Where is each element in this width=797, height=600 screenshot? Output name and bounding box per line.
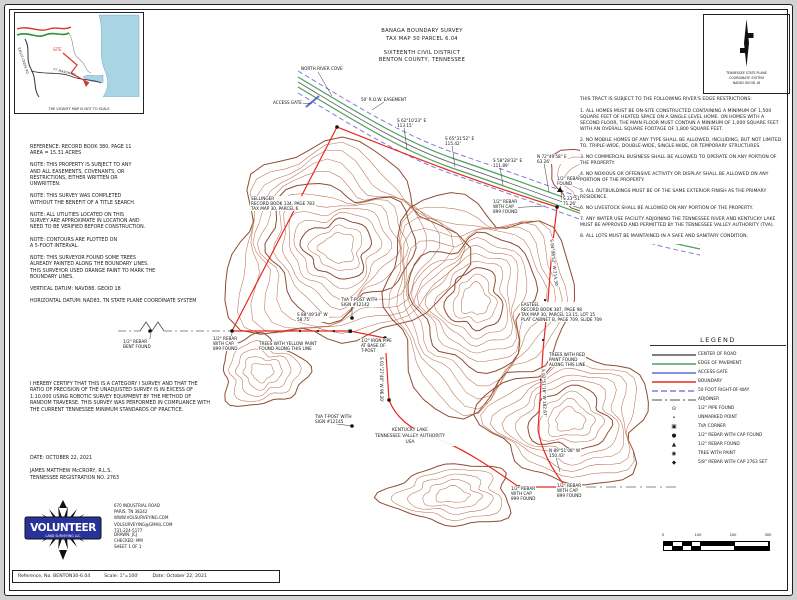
legend-entry: 50 FOOT RIGHT-OF-WAY [650, 386, 786, 395]
legend-line-sample [650, 388, 698, 394]
legend-entry: ◆5/8" REBAR WITH CAP 2763 SET [650, 458, 786, 467]
legend-symbol-icon: ◉ [650, 451, 698, 457]
map-label: TVA T-POST WITHSIGN #12142 [340, 297, 379, 307]
svg-text:VOLUNTEER: VOLUNTEER [30, 522, 96, 534]
scale-bar-row [664, 546, 769, 550]
north-arrow-box: TENNESSEE STATE PLANE COORDINATE SYSTEM … [703, 14, 790, 94]
scale-tick: 0 [662, 533, 664, 537]
legend-line-sample [650, 370, 698, 376]
surveyor-block: JAMES MATTHEW McCRORY, R.L.S. TENNESSEE … [30, 469, 119, 482]
legend-entry: BOUNDARY [650, 377, 786, 386]
legend: LEGEND CENTER OF ROADEDGE OF PAVEMENTACC… [650, 336, 786, 470]
map-label: 1/2" REBARWITH CAP899 FOUND [212, 336, 238, 351]
map-label: S 88°49'34" W58.75' [296, 312, 329, 322]
certification-date: DATE: OCTOBER 22, 2021 [30, 456, 92, 461]
restriction-item: 1. ALL HOMES MUST BE ON-SITE CONSTRUCTED… [580, 109, 785, 133]
survey-note: NOTE: THIS PROPERTY IS SUBJECT TO ANY AN… [30, 163, 202, 188]
survey-note: REFERENCE: RECORD BOOK 380, PAGE 11 AREA… [30, 145, 202, 157]
surveyor-name: JAMES MATTHEW McCRORY, R.L.S. [30, 469, 119, 476]
restrictions-column: THIS TRACT IS SUBJECT TO THE FOLLOWING R… [580, 97, 785, 244]
map-label: TREES WITH YELLOW PAINTFOUND ALONG THIS … [258, 341, 318, 351]
legend-symbol-icon: ● [650, 433, 698, 439]
legend-entry: ◉TREE WITH PAINT [650, 449, 786, 458]
legend-title: LEGEND [650, 336, 786, 346]
footer-bar: Reference, No. BENTON30-6.04 Scale: 1"=1… [12, 570, 280, 583]
survey-note: VERTICAL DATUM: NAVD88, GEOID 18 [30, 287, 202, 293]
legend-entry: ▲1/2" REBAR FOUND [650, 440, 786, 449]
map-label: ACCESS GATE [272, 100, 303, 105]
map-label: 1/2" REBARWITH CAP899 FOUND [556, 483, 582, 498]
vicinity-caption: THE VICINITY MAP IS NOT TO SCALE [15, 107, 143, 111]
restriction-item: 4. NO NOXIOUS OR OFFENSIVE ACTIVITY OR D… [580, 172, 785, 184]
legend-entry-label: TVA CORNER [698, 424, 726, 429]
legend-entry: ●1/2" REBAR WITH CAP FOUND [650, 431, 786, 440]
map-label: N 72°49'58" E63.26' [536, 154, 568, 164]
notes-column: REFERENCE: RECORD BOOK 380, PAGE 11 AREA… [30, 145, 202, 311]
scale-tick: 100 [695, 533, 702, 537]
restriction-item: 2. NO MOBILE HOMES OF ANY TYPE SHALL BE … [580, 138, 785, 150]
legend-line-sample [650, 352, 698, 358]
svg-text:LAND SURVEYING LLC: LAND SURVEYING LLC [45, 534, 81, 538]
legend-symbol-icon: ▣ [650, 424, 698, 430]
legend-entry-label: 5/8" REBAR WITH CAP 2763 SET [698, 460, 767, 465]
scale-bar: 0 100 200 300 [650, 533, 790, 555]
north-arrow-line: NAD83 GEOID 18 [704, 81, 789, 86]
survey-title: BANAGA BOUNDARY SURVEY [322, 28, 522, 36]
north-arrow-icon [704, 15, 789, 71]
restriction-item: 8. ALL LOTS MUST BE MAINTAINED IN A SAFE… [580, 234, 785, 240]
scale-bar-graphic [663, 541, 770, 551]
volunteer-logo-icon: VOLUNTEER LAND SURVEYING LLC [16, 498, 110, 562]
legend-entry-label: ACCESS GATE [698, 370, 728, 375]
legend-entry-label: TREE WITH PAINT [698, 451, 736, 456]
map-label: SELLINGERRECORD BOOK 134, PAGE 783TAX MA… [250, 196, 316, 211]
firm-address-line: WWW.VOLSURVEYING.COM [114, 515, 172, 521]
legend-entry-label: ADJOINER [698, 397, 719, 402]
map-label: 50' R.O.W. EASEMENT [360, 97, 407, 102]
vicinity-graphic [15, 13, 141, 97]
firm-logo: VOLUNTEER LAND SURVEYING LLC [16, 498, 110, 566]
legend-entry-label: 50 FOOT RIGHT-OF-WAY [698, 388, 749, 393]
map-label: 1/2" REBARWITH CAP899 FOUND [510, 486, 536, 501]
footer-reference: Reference, No. BENTON30-6.04 [18, 574, 90, 579]
map-label: S 62°10'23" E113.15' [396, 118, 427, 128]
map-label: NORTH RIVER COVE [300, 66, 344, 71]
restriction-item: 3. NO COMMERCIAL BUSINESS SHALL BE ALLOW… [580, 155, 785, 167]
map-label: 1/2" REBARBENT FOUND [122, 339, 152, 349]
map-label: TREES WITH REDPAINT FOUNDALONG THIS LINE [548, 352, 586, 367]
legend-entry: ACCESS GATE [650, 368, 786, 377]
survey-note: NOTE: THIS SURVEY WAS COMPLETED WITHOUT … [30, 194, 202, 206]
district-line: SIXTEENTH CIVIL DISTRICT [322, 50, 522, 58]
legend-symbol-icon: • [650, 415, 698, 421]
legend-entry: ▣TVA CORNER [650, 422, 786, 431]
map-label: S 65°31'52" E115.42' [444, 136, 475, 146]
legend-entry: EDGE OF PAVEMENT [650, 359, 786, 368]
site-label: SITE [53, 47, 62, 52]
scale-tick: 200 [730, 533, 737, 537]
map-label: S 01°27'40" W 96.20' [379, 356, 384, 403]
firm-address-line: VOLSURVEYING@GMAIL.COM [114, 522, 172, 528]
legend-entry-label: 1/2" REBAR WITH CAP FOUND [698, 433, 762, 438]
restrictions-intro: THIS TRACT IS SUBJECT TO THE FOLLOWING R… [580, 97, 785, 103]
north-arrow-text: TENNESSEE STATE PLANE COORDINATE SYSTEM … [704, 71, 789, 85]
survey-note: NOTE: ALL UTILITIES LOCATED ON THIS SURV… [30, 213, 202, 232]
survey-sheet: BANAGA BOUNDARY SURVEY TAX MAP 30 PARCEL… [0, 0, 797, 600]
map-label: TVA T-POST WITHSIGN #12145 [314, 414, 353, 424]
title-block: BANAGA BOUNDARY SURVEY TAX MAP 30 PARCEL… [322, 28, 522, 65]
legend-entry-label: BOUNDARY [698, 379, 722, 384]
legend-entry-label: 1/2" PIPE FOUND [698, 406, 734, 411]
lake-owner2: USA [352, 440, 468, 446]
map-label: 1/2" IRON PIPEAT BASE OFT-POST [360, 338, 393, 353]
map-label: EASTEELRECORD BOOK 387, PAGE 98TAX MAP 3… [520, 302, 603, 322]
certification-text: I HEREBY CERTIFY THAT THIS IS A CATEGORY… [30, 382, 210, 414]
legend-entry-label: UNMARKED POINT [698, 415, 737, 420]
survey-note: HORIZONTAL DATUM: NAD83, TN STATE PLANE … [30, 299, 202, 305]
legend-entry: ⊙1/2" PIPE FOUND [650, 404, 786, 413]
map-label: N 89°51'08" W150.43' [548, 448, 581, 458]
legend-entry: ADJOINER [650, 395, 786, 404]
legend-line-sample [650, 361, 698, 367]
survey-note: NOTE: CONTOURS ARE PLOTTED ON A 5-FOOT I… [30, 238, 202, 250]
legend-symbol-icon: ◆ [650, 460, 698, 466]
legend-line-sample [650, 379, 698, 385]
legend-line-sample [650, 397, 698, 403]
legend-entry-label: 1/2" REBAR FOUND [698, 442, 740, 447]
map-label: 1/2" REBARWITH CAP899 FOUND [492, 199, 518, 214]
vicinity-map: FT. MASON RD EAGLE CREEK RD SITE THE VIC… [14, 12, 144, 114]
surveyor-registration: TENNESSEE REGISTRATION NO. 2763 [30, 476, 119, 483]
map-label: S 58°28'32" E111.89' [492, 158, 523, 168]
parcel-line: TAX MAP 30 PARCEL 6.04 [322, 36, 522, 44]
map-label: 1/2" REBARFOUND [556, 176, 582, 186]
firm-meta-line: SHEET 1 OF 1 [114, 544, 143, 550]
county-line: BENTON COUNTY, TENNESSEE [322, 57, 522, 65]
legend-entry-label: EDGE OF PAVEMENT [698, 361, 742, 366]
footer-date: Date: October 22, 2021 [153, 574, 207, 579]
restriction-item: 5. ALL OUTBUILDINGS MUST BE OF THE SAME … [580, 189, 785, 201]
lake-label: KENTUCKY LAKE TENNESSEE VALLEY AUTHORITY… [352, 428, 468, 446]
restriction-item: 7. ANY WATER USE FACILITY ADJOINING THE … [580, 217, 785, 229]
legend-symbol-icon: ⊙ [650, 406, 698, 412]
scale-tick: 300 [765, 533, 772, 537]
firm-meta: DRAWN: JCJCHECKED: MMSHEET 1 OF 1 [114, 532, 143, 551]
survey-note: NOTE: THIS SURVEYOR FOUND SOME TREES ALR… [30, 256, 202, 281]
legend-entry-label: CENTER OF ROAD [698, 352, 736, 357]
legend-symbol-icon: ▲ [650, 442, 698, 448]
firm-info: 670 INDUSTRIAL ROADPARIS, TN 38242WWW.VO… [114, 503, 172, 534]
restriction-item: 6. NO LIVESTOCK SHALL BE ALLOWED ON ANY … [580, 206, 785, 212]
legend-entry: •UNMARKED POINT [650, 413, 786, 422]
legend-entry: CENTER OF ROAD [650, 350, 786, 359]
footer-scale: Scale: 1"=100' [104, 574, 138, 579]
